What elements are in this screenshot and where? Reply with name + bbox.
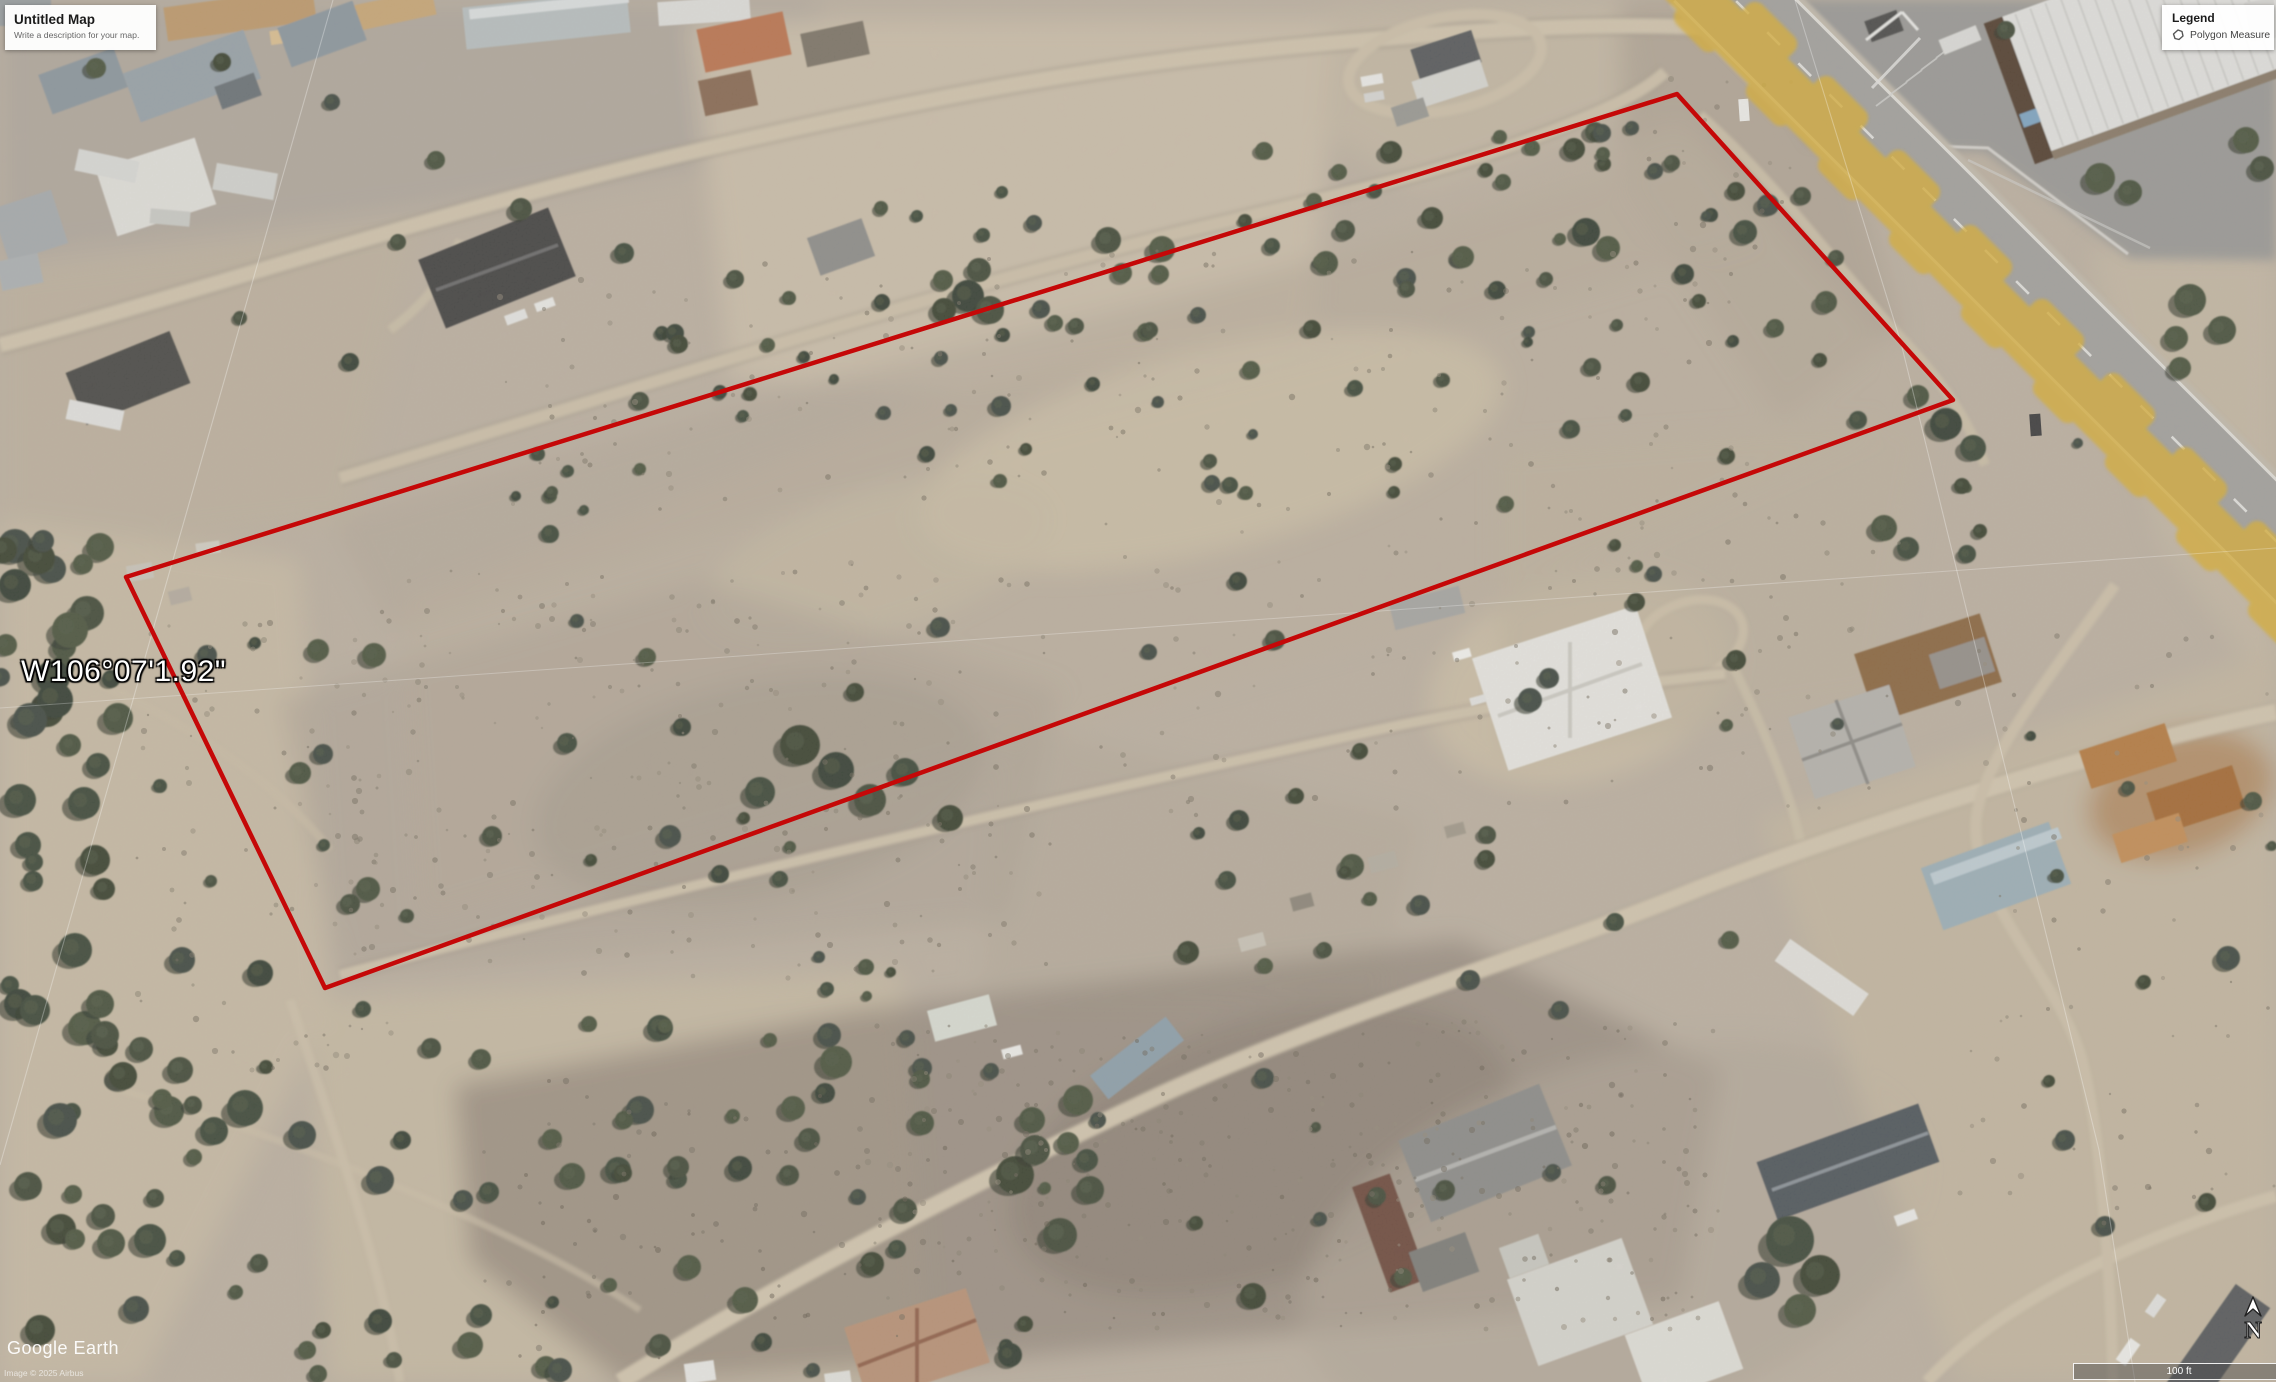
svg-text:N: N bbox=[2244, 1318, 2262, 1344]
